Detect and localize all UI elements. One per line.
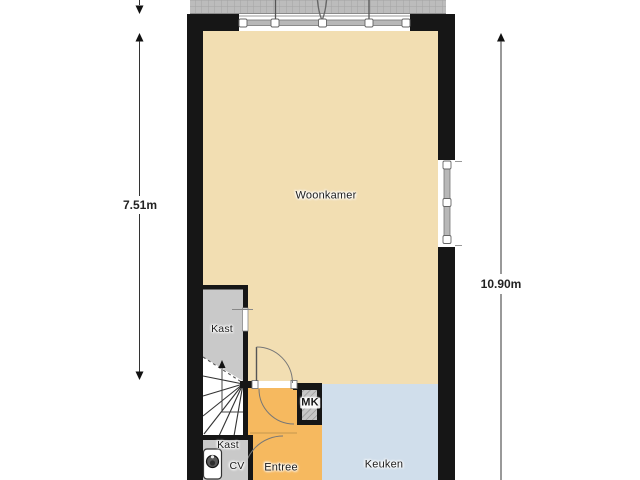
floorplan-drawing [0,0,640,480]
wall-stairs-right [243,381,248,437]
room-label-woonkamer: Woonkamer [296,191,357,202]
room-label-kast-woonkamer: Kast [211,324,233,335]
wall-left [187,14,203,480]
wall-mk-bottom [297,420,322,425]
wall-right-lower [438,247,455,480]
dimension-label-right: 10.90m [478,277,525,291]
floorplan-canvas: Woonkamer Keuken Entree Kast Kast MK CV … [0,0,640,480]
dimension-label-left: 7.51m [120,198,160,212]
staircase [203,289,246,437]
wall-kast-top [203,285,248,290]
window-right [438,160,462,247]
cv-boiler-icon [204,449,222,479]
room-label-cv: CV [230,461,245,472]
dimension-line-right [497,33,505,480]
room-label-entree: Entree [264,463,298,474]
room-label-kast-hal: Kast [217,440,239,451]
wall-hal-kast-right [248,435,253,480]
dimension-line-left [136,0,144,380]
wall-top-left-segment [187,14,239,31]
window-top [239,15,410,31]
wall-kast-right-lower [243,331,248,381]
room-label-keuken: Keuken [365,460,404,471]
wall-kast-right-upper [243,289,248,308]
room-label-mk: MK [300,398,320,409]
wall-right-upper [438,14,455,160]
